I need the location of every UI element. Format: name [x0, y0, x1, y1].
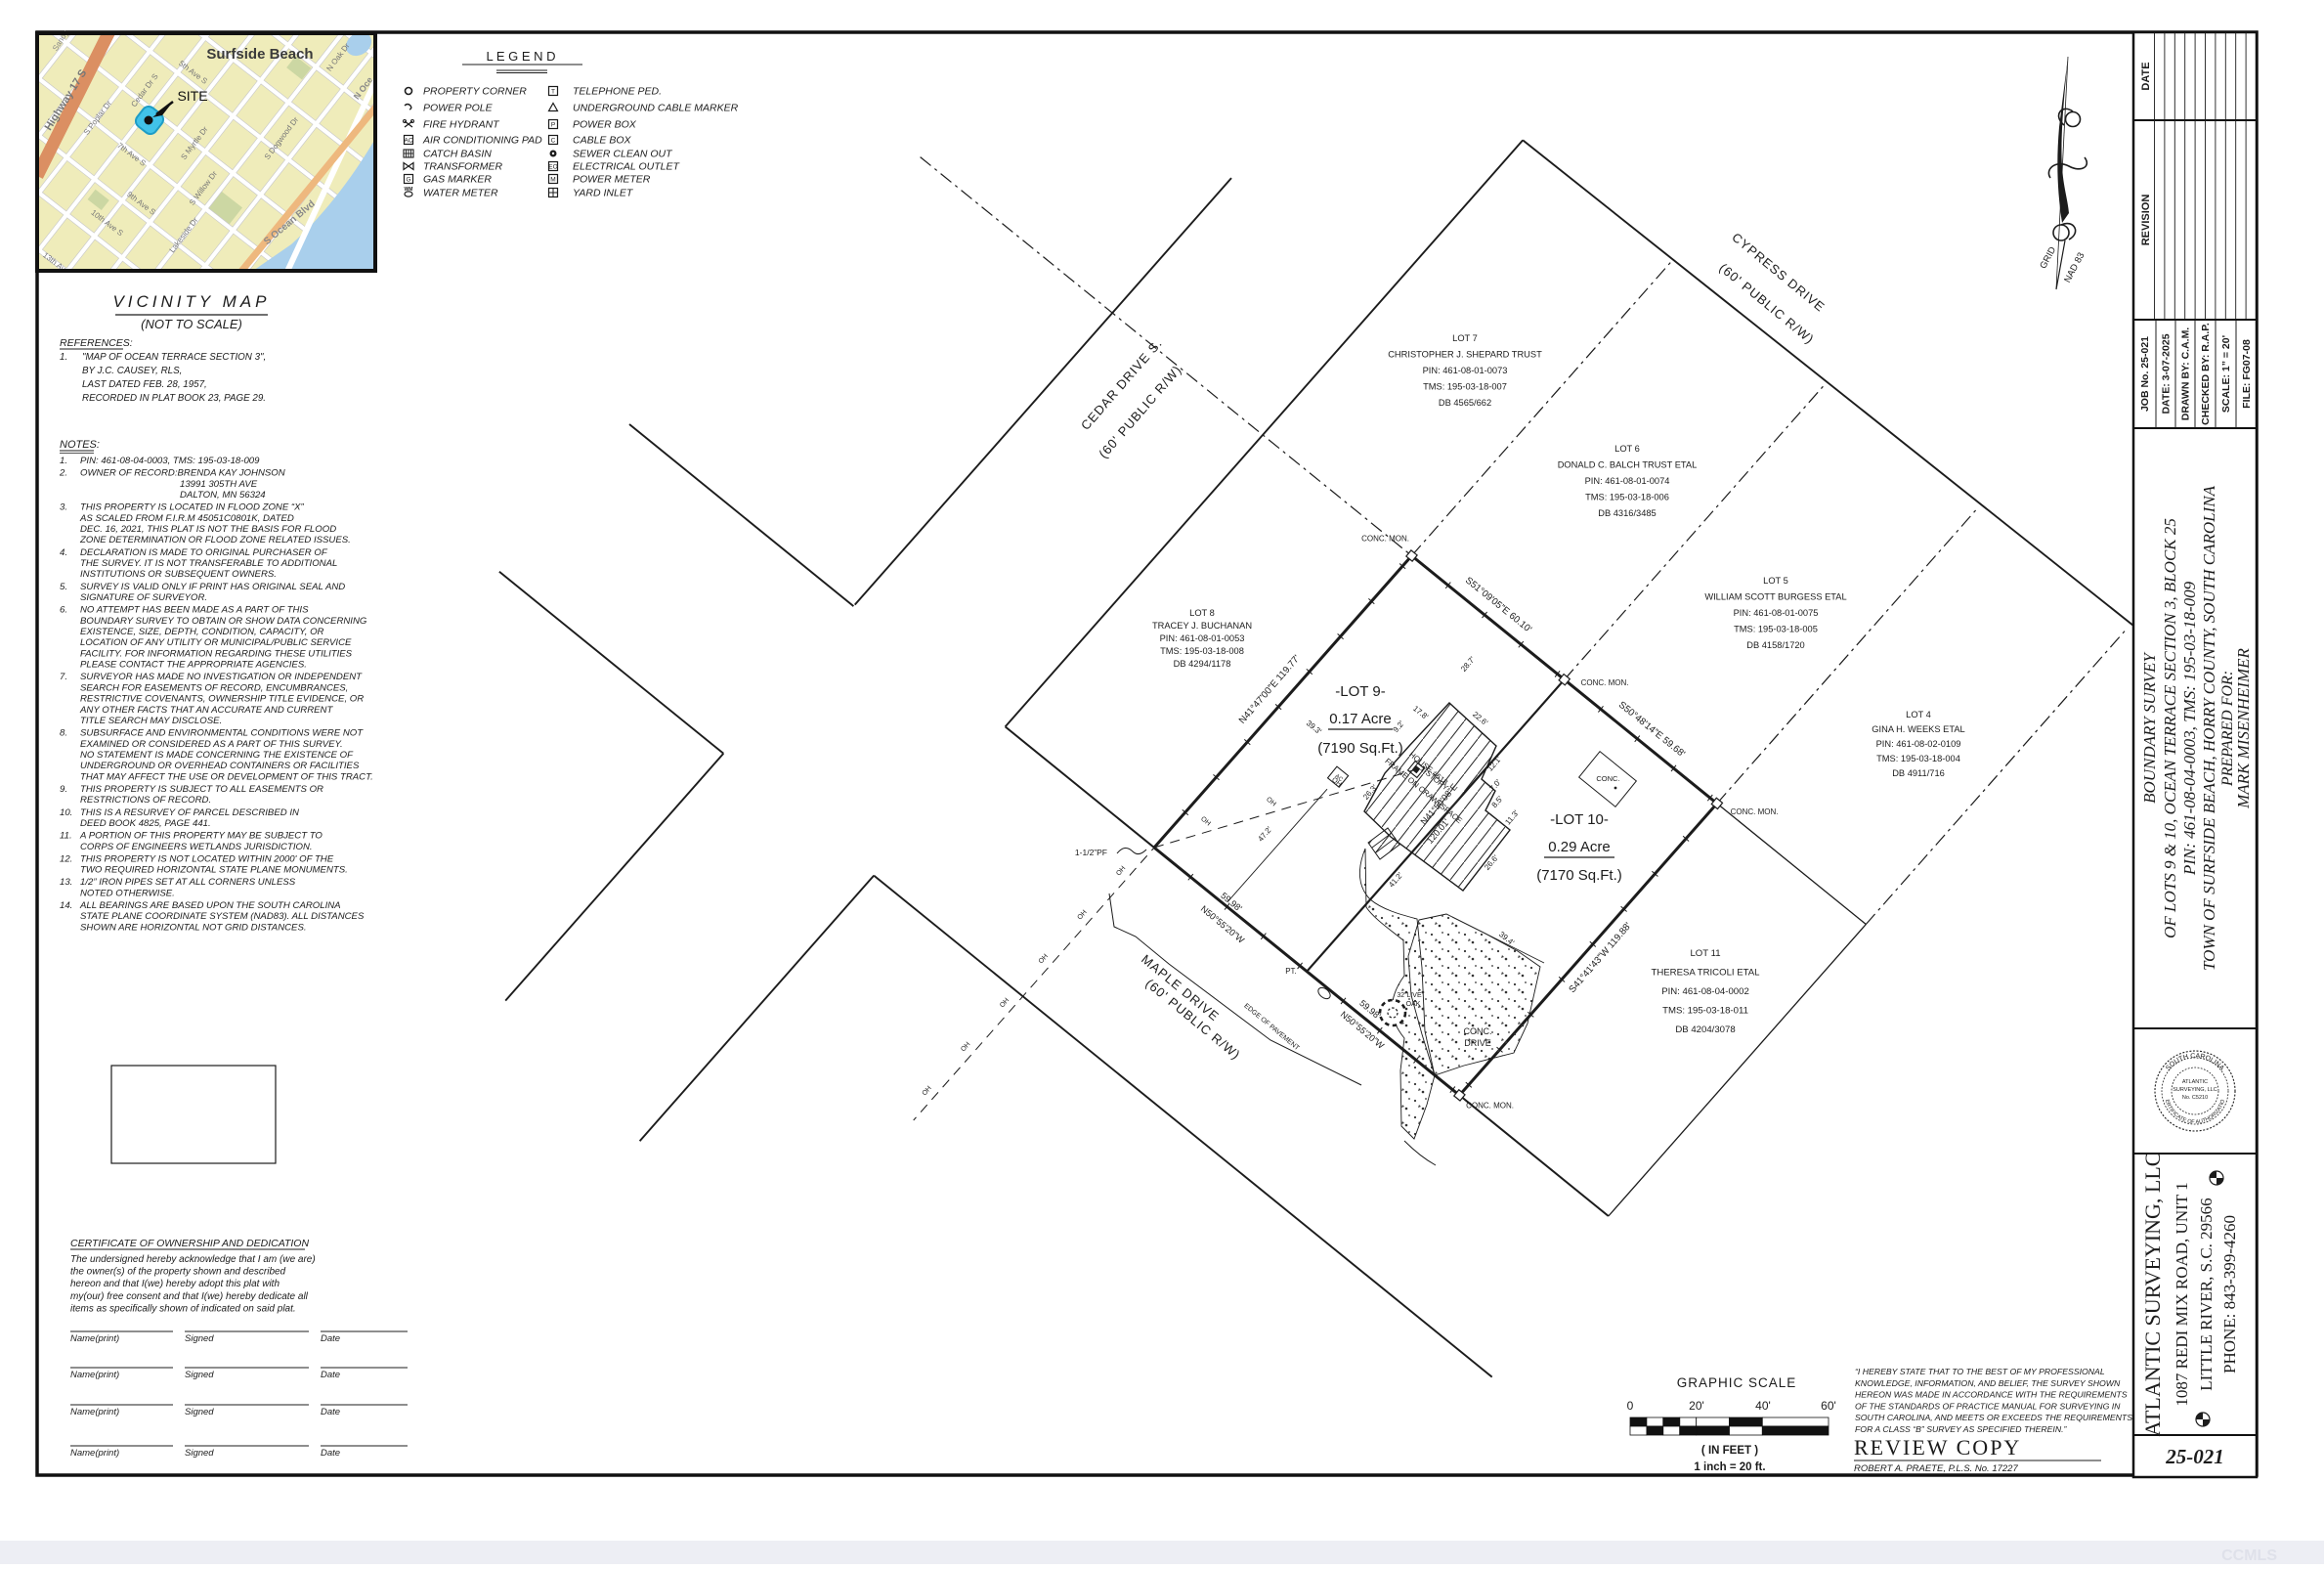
- svg-text:LOT 6: LOT 6: [1614, 444, 1640, 454]
- svg-text:No. C5210: No. C5210: [2182, 1095, 2208, 1101]
- svg-text:0: 0: [1627, 1399, 1634, 1413]
- svg-text:Date: Date: [321, 1407, 340, 1417]
- svg-text:13.: 13.: [60, 877, 72, 888]
- svg-text:OAK: OAK: [1406, 1001, 1421, 1008]
- svg-text:POWER METER: POWER METER: [573, 174, 651, 186]
- svg-text:OF THE STANDARDS OF PRACTICE: OF THE STANDARDS OF PRACTICE MANUAL FOR …: [1855, 1401, 2121, 1411]
- svg-text:L E G E N D: L E G E N D: [486, 49, 555, 64]
- svg-text:POWER POLE: POWER POLE: [423, 103, 494, 114]
- svg-text:CONC. MON.: CONC. MON.: [1731, 807, 1779, 816]
- svg-text:20': 20': [1689, 1399, 1704, 1413]
- svg-text:The undersigned hereby acknowl: The undersigned hereby acknowledge that …: [70, 1254, 316, 1265]
- svg-text:POWER BOX: POWER BOX: [573, 119, 637, 131]
- svg-text:RESTRICTIONS OF RECORD.: RESTRICTIONS OF RECORD.: [80, 795, 211, 806]
- svg-text:DEED BOOK 4825, PAGE 441.: DEED BOOK 4825, PAGE 441.: [80, 818, 211, 829]
- svg-text:CONC. MON.: CONC. MON.: [1361, 535, 1409, 544]
- svg-text:TMS: 195-03-18-006: TMS: 195-03-18-006: [1585, 493, 1669, 502]
- svg-text:1.: 1.: [60, 456, 67, 466]
- svg-text:4.: 4.: [60, 547, 67, 558]
- svg-text:SHOWN ARE HORIZONTAL NOT GRID: SHOWN ARE HORIZONTAL NOT GRID DISTANCES.: [80, 922, 307, 933]
- svg-text:LAST DATED FEB. 28, 1957,: LAST DATED FEB. 28, 1957,: [82, 379, 207, 390]
- svg-text:CERTIFICATE OF OWNERSHIP AND D: CERTIFICATE OF OWNERSHIP AND DEDICATION: [70, 1238, 309, 1249]
- svg-text:REFERENCES:: REFERENCES:: [60, 337, 133, 349]
- svg-text:9.: 9.: [60, 784, 67, 795]
- svg-text:the owner(s) of the property s: the owner(s) of the property shown and d…: [70, 1267, 286, 1278]
- svg-text:(7170 Sq.Ft.): (7170 Sq.Ft.): [1536, 867, 1622, 884]
- svg-text:DECLARATION IS MADE TO ORIGINA: DECLARATION IS MADE TO ORIGINAL PURCHASE…: [80, 547, 328, 558]
- svg-text:LOT 7: LOT 7: [1452, 333, 1478, 343]
- svg-text:SOUTH CAROLINA, AND MEETS OR E: SOUTH CAROLINA, AND MEETS OR EXCEEDS THE…: [1855, 1413, 2132, 1422]
- svg-text:THIS PROPERTY IS SUBJECT TO AL: THIS PROPERTY IS SUBJECT TO ALL EASEMENT…: [80, 784, 323, 795]
- svg-text:THE SURVEY. IT IS NOT TRANSFER: THE SURVEY. IT IS NOT TRANSFERABLE TO AD…: [80, 558, 337, 569]
- svg-text:“I HEREBY STATE THAT TO THE BE: “I HEREBY STATE THAT TO THE BEST OF MY P…: [1855, 1367, 2105, 1376]
- svg-text:TITLE SEARCH MAY DISCLOSE.: TITLE SEARCH MAY DISCLOSE.: [80, 716, 222, 726]
- svg-text:1/2” IRON PIPES SET AT ALL COR: 1/2” IRON PIPES SET AT ALL CORNERS UNLES…: [80, 877, 296, 888]
- svg-text:UNDERGROUND CABLE MARKER: UNDERGROUND CABLE MARKER: [573, 103, 739, 114]
- svg-text:DRIVE: DRIVE: [1464, 1038, 1491, 1048]
- svg-text:HEREON WAS MADE IN ACCORDANCE: HEREON WAS MADE IN ACCORDANCE WITH THE R…: [1855, 1390, 2128, 1400]
- svg-text:LOT 5: LOT 5: [1763, 576, 1788, 586]
- svg-text:ALL BEARINGS ARE BASED UPON TH: ALL BEARINGS ARE BASED UPON THE SOUTH CA…: [79, 900, 341, 911]
- svg-text:BOUNDARY SURVEY: BOUNDARY SURVEY: [2140, 652, 2159, 804]
- svg-text:GRAPHIC SCALE: GRAPHIC SCALE: [1677, 1375, 1797, 1390]
- svg-text:SITE: SITE: [177, 88, 207, 104]
- svg-text:TMS: 195-03-18-008: TMS: 195-03-18-008: [1160, 646, 1244, 656]
- svg-text:Signed: Signed: [185, 1370, 214, 1380]
- svg-text:AC: AC: [404, 138, 412, 145]
- svg-text:ZONE DETERMINATION OR FLOOD ZO: ZONE DETERMINATION OR FLOOD ZONE RELATED…: [79, 535, 351, 545]
- svg-text:BY J.C. CAUSEY, RLS,: BY J.C. CAUSEY, RLS,: [82, 366, 182, 376]
- svg-text:Name(print): Name(print): [70, 1407, 119, 1417]
- svg-text:P: P: [551, 122, 555, 129]
- svg-text:CONC. MON.: CONC. MON.: [1466, 1102, 1514, 1111]
- svg-text:hereon and that I(we) hereby a: hereon and that I(we) hereby adopt this …: [70, 1279, 280, 1289]
- svg-text:RESTRICTIVE COVENANTS, OWNERSH: RESTRICTIVE COVENANTS, OWNERSHIP TITLE E…: [80, 694, 364, 705]
- svg-text:THIS IS A RESURVEY OF PARCEL D: THIS IS A RESURVEY OF PARCEL DESCRIBED I…: [80, 807, 299, 818]
- svg-text:RECORDED IN PLAT BOOK 23, PAGE: RECORDED IN PLAT BOOK 23, PAGE 29.: [82, 393, 266, 404]
- svg-text:PIN: 461-08-01-0053: PIN: 461-08-01-0053: [1160, 633, 1245, 643]
- svg-text:ATLANTIC SURVEYING, LLC: ATLANTIC SURVEYING, LLC: [2140, 1153, 2165, 1437]
- svg-text:OF LOTS 9 & 10, OCEAN TERRACE: OF LOTS 9 & 10, OCEAN TERRACE SECTION 3,…: [2161, 518, 2179, 938]
- svg-text:EXAMINED OR CONSIDERED AS A PA: EXAMINED OR CONSIDERED AS A PART OF THIS…: [80, 739, 343, 750]
- svg-text:G: G: [406, 177, 410, 184]
- svg-text:LOCATION OF ANY UTILITY OR MUN: LOCATION OF ANY UTILITY OR MUNICIPAL/PUB…: [80, 637, 352, 648]
- svg-text:0.17 Acre: 0.17 Acre: [1329, 711, 1391, 727]
- svg-text:SCALE: 1” = 20': SCALE: 1” = 20': [2220, 335, 2232, 413]
- svg-text:NOTES:: NOTES:: [60, 439, 100, 451]
- svg-text:DRAWN BY: C.A.M.: DRAWN BY: C.A.M.: [2180, 327, 2192, 421]
- svg-text:Signed: Signed: [185, 1407, 214, 1417]
- svg-text:TMS: 195-03-18-011: TMS: 195-03-18-011: [1662, 1006, 1748, 1017]
- svg-text:0.29 Acre: 0.29 Acre: [1548, 839, 1610, 855]
- svg-text:Date: Date: [321, 1370, 340, 1380]
- svg-text:CONC.: CONC.: [1596, 774, 1619, 783]
- svg-text:3.: 3.: [60, 502, 67, 513]
- svg-text:1 inch = 20 ft.: 1 inch = 20 ft.: [1694, 1461, 1765, 1473]
- svg-text:A PORTION OF THIS PROPERTY MAY: A PORTION OF THIS PROPERTY MAY BE SUBJEC…: [79, 831, 323, 842]
- svg-text:25-021: 25-021: [2165, 1445, 2224, 1468]
- svg-text:EXISTENCE, SIZE, DEPTH, CONDIT: EXISTENCE, SIZE, DEPTH, CONDITION, CAPAC…: [80, 627, 324, 637]
- svg-text:14.: 14.: [60, 900, 72, 911]
- svg-text:LITTLE RIVER, S.C. 29566: LITTLE RIVER, S.C. 29566: [2197, 1198, 2216, 1390]
- svg-text:PLEASE CONTACT THE APPROPRIATE: PLEASE CONTACT THE APPROPRIATE AGENCIES.: [80, 660, 307, 671]
- svg-text:10.: 10.: [60, 807, 72, 818]
- svg-text:THAT MAY AFFECT THE USE OR DEV: THAT MAY AFFECT THE USE OR DEVELOPMENT O…: [80, 771, 373, 782]
- svg-text:FOR A CLASS “B” SURVEY AS SPEC: FOR A CLASS “B” SURVEY AS SPECIFIED THER…: [1855, 1424, 2068, 1434]
- svg-text:DATE: 3-07-2025: DATE: 3-07-2025: [2161, 333, 2173, 414]
- svg-text:FILE: FG07-08: FILE: FG07-08: [2241, 339, 2253, 409]
- svg-text:2.: 2.: [59, 468, 67, 479]
- svg-text:AIR CONDITIONING PAD: AIR CONDITIONING PAD: [422, 135, 542, 147]
- svg-text:WILLIAM SCOTT BURGESS ETAL: WILLIAM SCOTT BURGESS ETAL: [1704, 592, 1846, 602]
- svg-text:Name(print): Name(print): [70, 1370, 119, 1380]
- svg-text:1-1/2”PF: 1-1/2”PF: [1075, 848, 1107, 857]
- svg-text:LOT 8: LOT 8: [1189, 608, 1215, 618]
- svg-text:JOB No. 25-021: JOB No. 25-021: [2139, 336, 2151, 412]
- svg-text:C: C: [551, 138, 556, 145]
- svg-text:my(our) free consent and that: my(our) free consent and that I(we) here…: [70, 1291, 309, 1302]
- svg-text:SEARCH FOR EASEMENTS OF RECORD: SEARCH FOR EASEMENTS OF RECORD, ENCUMBRA…: [80, 682, 348, 693]
- svg-text:PIN: 461-08-04-0003, TMS: 195-: PIN: 461-08-04-0003, TMS: 195-03-18-009: [2180, 581, 2199, 876]
- svg-text:NOTED OTHERWISE.: NOTED OTHERWISE.: [80, 888, 175, 898]
- svg-text:PIN: 461-08-04-0003, TMS: 195-: PIN: 461-08-04-0003, TMS: 195-03-18-009: [80, 456, 260, 466]
- svg-text:Signed: Signed: [185, 1333, 214, 1344]
- svg-text:CHECKED BY: R.A.P.: CHECKED BY: R.A.P.: [2200, 323, 2212, 425]
- svg-text:5.: 5.: [60, 582, 67, 592]
- svg-text:13991 305TH AVE: 13991 305TH AVE: [180, 479, 258, 490]
- svg-text:PT.: PT.: [1285, 967, 1297, 976]
- svg-text:(NOT TO SCALE): (NOT TO SCALE): [141, 317, 242, 331]
- svg-text:UNDERGROUND OR OVERHEAD CONTAI: UNDERGROUND OR OVERHEAD CONTAINERS OR FA…: [80, 761, 360, 771]
- svg-text:TELEPHONE PED.: TELEPHONE PED.: [573, 86, 662, 98]
- svg-text:DATE: DATE: [2140, 62, 2152, 90]
- svg-text:DB 4158/1720: DB 4158/1720: [1746, 640, 1804, 650]
- svg-text:VICINITY MAP: VICINITY MAP: [112, 292, 270, 311]
- svg-text:TOWN OF SURFSIDE BEACH, HORRY: TOWN OF SURFSIDE BEACH, HORRY COUNTY, SO…: [2200, 485, 2218, 971]
- svg-text:REVIEW COPY: REVIEW COPY: [1854, 1435, 2021, 1460]
- svg-text:LOT 11: LOT 11: [1690, 948, 1720, 959]
- svg-text:TMS: 195-03-18-005: TMS: 195-03-18-005: [1734, 625, 1818, 634]
- svg-text:NO STATEMENT IS MADE CONCERNIN: NO STATEMENT IS MADE CONCERNING THE EXIS…: [80, 750, 354, 761]
- svg-text:PHONE: 843-399-4260: PHONE: 843-399-4260: [2220, 1215, 2239, 1373]
- svg-text:"MAP OF OCEAN TERRACE SECTION: "MAP OF OCEAN TERRACE SECTION 3",: [82, 352, 266, 363]
- svg-text:BOUNDARY SURVEY TO OBTAIN OR S: BOUNDARY SURVEY TO OBTAIN OR SHOW DATA C…: [80, 616, 367, 627]
- svg-text:PIN: 461-08-01-0075: PIN: 461-08-01-0075: [1734, 608, 1819, 618]
- svg-text:TMS: 195-03-18-004: TMS: 195-03-18-004: [1876, 754, 1960, 763]
- svg-text:SUBSURFACE AND ENVIRONMENTAL C: SUBSURFACE AND ENVIRONMENTAL CONDITIONS …: [80, 728, 364, 739]
- svg-text:PIN: 461-08-01-0073: PIN: 461-08-01-0073: [1423, 366, 1508, 375]
- svg-text:PROPERTY CORNER: PROPERTY CORNER: [423, 86, 527, 98]
- svg-text:1087 REDI MIX ROAD, UNIT 1: 1087 REDI MIX ROAD, UNIT 1: [2173, 1182, 2191, 1406]
- svg-text:SURVEYOR HAS MADE NO INVESTIGA: SURVEYOR HAS MADE NO INVESTIGATION OR IN…: [80, 672, 363, 682]
- svg-text:1.: 1.: [60, 352, 67, 363]
- svg-text:Signed: Signed: [185, 1448, 214, 1459]
- svg-text:TMS: 195-03-18-007: TMS: 195-03-18-007: [1423, 382, 1507, 392]
- svg-text:TRACEY J. BUCHANAN: TRACEY J. BUCHANAN: [1152, 621, 1252, 631]
- svg-text:AS SCALED FROM F.I.R.M 45051C0: AS SCALED FROM F.I.R.M 45051C0801K, DATE…: [79, 513, 294, 524]
- svg-text:Name(print): Name(print): [70, 1333, 119, 1344]
- svg-text:12.: 12.: [60, 853, 72, 864]
- svg-text:32”LIVE: 32”LIVE: [1397, 992, 1422, 999]
- svg-text:OWNER OF RECORD:BRENDA KAY JOH: OWNER OF RECORD:BRENDA KAY JOHNSON: [80, 468, 285, 479]
- svg-text:MARK MISENHEIMER: MARK MISENHEIMER: [2234, 647, 2253, 808]
- svg-text:( IN FEET ): ( IN FEET ): [1701, 1445, 1758, 1457]
- svg-text:DB 4316/3485: DB 4316/3485: [1598, 508, 1656, 518]
- svg-text:(7190 Sq.Ft.): (7190 Sq.Ft.): [1317, 740, 1403, 757]
- svg-text:items as specifically shown of: items as specifically shown of indicated…: [70, 1303, 296, 1314]
- svg-text:SURVEY IS VALID ONLY IF PRINT: SURVEY IS VALID ONLY IF PRINT HAS ORIGIN…: [80, 582, 345, 592]
- svg-text:ATLANTIC: ATLANTIC: [2182, 1079, 2208, 1085]
- svg-text:M: M: [550, 177, 555, 184]
- svg-text:ELECTRICAL OUTLET: ELECTRICAL OUTLET: [573, 161, 681, 173]
- svg-text:CORPS OF ENGINEERS WETLANDS JU: CORPS OF ENGINEERS WETLANDS JURISDICTION…: [80, 842, 313, 852]
- svg-text:40': 40': [1755, 1399, 1771, 1413]
- svg-text:-LOT 10-: -LOT 10-: [1550, 811, 1609, 828]
- svg-text:THIS PROPERTY IS NOT LOCATED W: THIS PROPERTY IS NOT LOCATED WITHIN 2000…: [80, 853, 334, 864]
- svg-text:CCMLS: CCMLS: [2221, 1547, 2277, 1564]
- svg-text:DB 4565/662: DB 4565/662: [1439, 398, 1491, 408]
- svg-text:NO ATTEMPT HAS BEEN MADE AS A: NO ATTEMPT HAS BEEN MADE AS A PART OF TH…: [80, 605, 309, 616]
- svg-text:KNOWLEDGE, INFORMATION, AND BE: KNOWLEDGE, INFORMATION, AND BELIEF, THE …: [1855, 1378, 2121, 1388]
- svg-text:CONC. MON.: CONC. MON.: [1581, 678, 1629, 687]
- svg-text:DB 4911/716: DB 4911/716: [1892, 768, 1945, 778]
- svg-text:DB 4294/1178: DB 4294/1178: [1174, 659, 1231, 669]
- svg-text:DEC. 16, 2021, THIS PLAT IS NO: DEC. 16, 2021, THIS PLAT IS NOT THE BASI…: [80, 524, 336, 535]
- svg-text:CABLE BOX: CABLE BOX: [573, 135, 632, 147]
- svg-text:CATCH BASIN: CATCH BASIN: [423, 149, 492, 160]
- svg-text:DB 4204/3078: DB 4204/3078: [1675, 1024, 1735, 1035]
- svg-text:TRANSFORMER: TRANSFORMER: [423, 161, 503, 173]
- svg-text:Date: Date: [321, 1333, 340, 1344]
- svg-text:DONALD C. BALCH TRUST ETAL: DONALD C. BALCH TRUST ETAL: [1558, 460, 1698, 470]
- svg-text:CHRISTOPHER J. SHEPARD TRUST: CHRISTOPHER J. SHEPARD TRUST: [1388, 350, 1542, 360]
- svg-text:THIS PROPERTY IS LOCATED IN FL: THIS PROPERTY IS LOCATED IN FLOOD ZONE “…: [80, 502, 304, 513]
- svg-text:PIN: 461-08-01-0074: PIN: 461-08-01-0074: [1585, 476, 1670, 486]
- svg-text:INSTITUTIONS OR SUBSEQUENT OWN: INSTITUTIONS OR SUBSEQUENT OWNERS.: [80, 569, 277, 580]
- svg-text:WM: WM: [405, 187, 413, 193]
- svg-text:SURVEYING, LLC: SURVEYING, LLC: [2173, 1087, 2216, 1093]
- svg-text:6.: 6.: [60, 605, 67, 616]
- svg-text:CONC.: CONC.: [1464, 1026, 1492, 1036]
- svg-text:8.: 8.: [60, 728, 67, 739]
- svg-text:YARD INLET: YARD INLET: [573, 188, 634, 199]
- svg-text:SEWER CLEAN OUT: SEWER CLEAN OUT: [573, 149, 673, 160]
- svg-text:THERESA TRICOLI ETAL: THERESA TRICOLI ETAL: [1651, 968, 1760, 979]
- svg-text:FACILITY. FOR INFORMATION REGA: FACILITY. FOR INFORMATION REGARDING THES…: [80, 648, 353, 659]
- svg-text:T: T: [551, 89, 555, 96]
- svg-text:PIN: 461-08-02-0109: PIN: 461-08-02-0109: [1876, 739, 1961, 749]
- svg-text:Surfside Beach: Surfside Beach: [206, 46, 313, 63]
- svg-text:EO: EO: [548, 164, 557, 171]
- svg-text:GINA H. WEEKS ETAL: GINA H. WEEKS ETAL: [1872, 724, 1964, 734]
- svg-text:11.: 11.: [60, 831, 72, 842]
- svg-text:WATER METER: WATER METER: [423, 188, 498, 199]
- svg-text:ANY OTHER FACTS THAT AN ACCURA: ANY OTHER FACTS THAT AN ACCURATE AND CUR…: [79, 705, 333, 716]
- svg-text:60': 60': [1821, 1399, 1836, 1413]
- svg-text:7.: 7.: [60, 672, 67, 682]
- svg-text:-LOT 9-: -LOT 9-: [1335, 683, 1385, 700]
- svg-text:TWO REQUIRED HORIZONTAL STATE: TWO REQUIRED HORIZONTAL STATE PLANE MONU…: [80, 865, 348, 876]
- svg-text:GAS MARKER: GAS MARKER: [423, 174, 492, 186]
- svg-text:REVISION: REVISION: [2140, 195, 2152, 246]
- svg-text:Name(print): Name(print): [70, 1448, 119, 1459]
- svg-text:SIGNATURE OF SURVEYOR.: SIGNATURE OF SURVEYOR.: [80, 592, 207, 603]
- svg-text:FIRE HYDRANT: FIRE HYDRANT: [423, 119, 500, 131]
- svg-text:LOT 4: LOT 4: [1906, 710, 1931, 719]
- svg-text:PIN: 461-08-04-0002: PIN: 461-08-04-0002: [1661, 986, 1749, 997]
- svg-text:Date: Date: [321, 1448, 340, 1459]
- svg-text:ROBERT A. PRAETE, P.L.S. No. 1: ROBERT A. PRAETE, P.L.S. No. 17227: [1854, 1463, 2018, 1474]
- svg-text:DALTON, MN 56324: DALTON, MN 56324: [180, 490, 266, 501]
- svg-text:STATE PLANE COORDINATE SYSTEM: STATE PLANE COORDINATE SYSTEM (NAD83). A…: [80, 911, 365, 922]
